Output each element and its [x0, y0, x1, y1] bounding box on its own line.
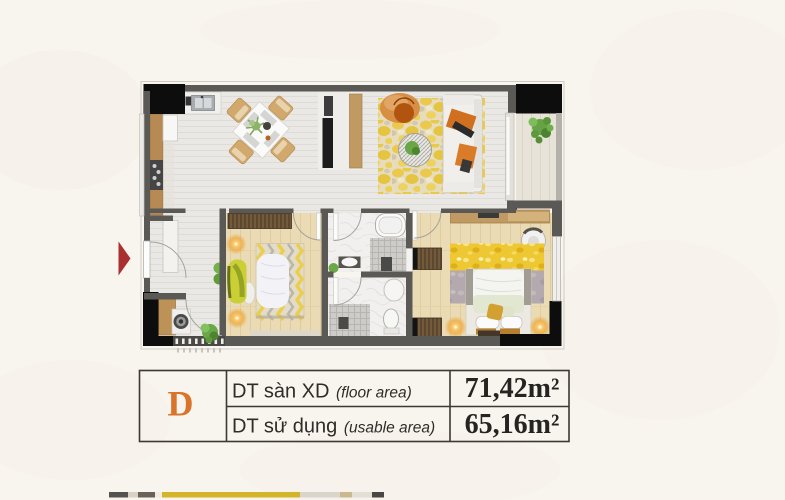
svg-text:DT sàn XD (floor area): DT sàn XD (floor area)	[232, 381, 412, 403]
svg-text:DT sử dụng (usable area): DT sử dụng (usable area)	[232, 416, 435, 438]
svg-text:D: D	[168, 384, 194, 424]
svg-text:65,16m²: 65,16m²	[465, 409, 560, 440]
svg-text:71,42m²: 71,42m²	[465, 373, 560, 404]
